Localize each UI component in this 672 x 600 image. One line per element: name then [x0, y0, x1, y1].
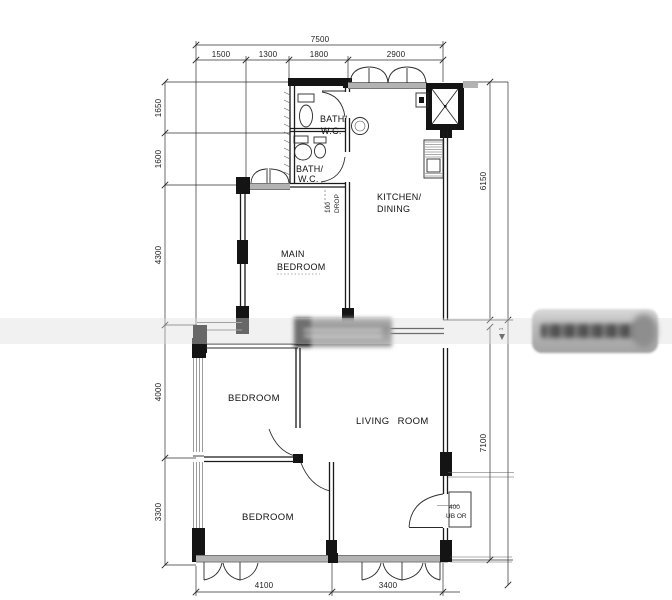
kitchen-top-windows	[348, 66, 427, 89]
main-bedroom-window	[250, 168, 290, 190]
room-label-kitchen-2: DINING	[377, 204, 410, 214]
dim-top-4: 2900	[387, 50, 406, 59]
bedroom-mid-walls	[204, 348, 303, 463]
lower-left-wall	[192, 338, 206, 562]
living-room-right-wall	[440, 348, 452, 562]
room-label-bath-top-2: W.C.	[321, 126, 342, 136]
corridor-band	[463, 83, 478, 88]
bedroom-bottom-walls	[301, 462, 337, 562]
living-room-door	[409, 494, 443, 528]
kitchen-right-wall	[440, 124, 452, 320]
note-drop-2: DROP	[334, 194, 341, 213]
floor-plan-canvas: 7500 1500 1300 1800 2900 1650 1600 4300 …	[0, 0, 672, 600]
bath-doors	[321, 91, 345, 182]
dim-step-arrow	[499, 334, 505, 340]
watermark-blob	[631, 314, 657, 348]
duct-hatch	[284, 92, 290, 175]
dim-bottom-2: 3400	[379, 581, 398, 590]
dim-top-total: 7500	[311, 35, 330, 44]
room-label-bedroom-bottom: BEDROOM	[242, 512, 294, 523]
dim-left-3: 4300	[154, 245, 163, 264]
dim-left-2: 1600	[154, 149, 163, 168]
kitchen-basin	[352, 118, 369, 135]
note-drop-1: 100	[325, 202, 332, 213]
watermark-badge	[532, 309, 658, 353]
dim-bottom-1: 4100	[255, 581, 274, 590]
room-label-living-room: LIVING ROOM	[356, 416, 429, 427]
dim-top-1: 1500	[212, 50, 231, 59]
room-label-kitchen-1: KITCHEN/	[377, 192, 422, 202]
main-bedroom-walls	[236, 177, 250, 334]
note-ledge-1: 400	[449, 504, 460, 511]
bottom-windows	[196, 553, 448, 580]
room-label-bedroom-mid: BEDROOM	[228, 393, 280, 404]
note-drop: 100 DROP	[325, 190, 341, 213]
room-label-bath-mid-1: BATH/	[296, 164, 324, 174]
dim-right-lower: 7100	[479, 433, 488, 452]
note-ledge-2: UB OR	[446, 513, 467, 520]
dim-left-1: 1650	[154, 98, 163, 117]
ledge-box: 400 UB OR	[437, 492, 471, 527]
bedroom-bottom-door	[301, 463, 330, 491]
dim-right-step: 1	[499, 327, 505, 330]
floor-plan-page: 7500 1500 1300 1800 2900 1650 1600 4300 …	[0, 0, 672, 600]
dim-right-upper: 6150	[479, 171, 488, 190]
kitchen-appliances	[424, 140, 443, 178]
room-label-main-bedroom-1: MAIN	[281, 249, 305, 259]
room-label-bath-top-1: BATH/	[320, 114, 348, 124]
watermark-blurred-text	[541, 324, 645, 338]
dim-left-5: 3300	[154, 502, 163, 521]
dim-top-3: 1800	[310, 50, 329, 59]
room-label-bath-mid-2: W.C.	[298, 174, 319, 184]
smudged-window-bar	[294, 318, 392, 347]
bedroom-mid-door	[269, 429, 295, 456]
lift-shaft	[426, 83, 464, 130]
dim-left-4: 4000	[154, 382, 163, 401]
room-label-main-bedroom-2: BEDROOM	[277, 262, 326, 272]
dim-top-2: 1300	[259, 50, 278, 59]
